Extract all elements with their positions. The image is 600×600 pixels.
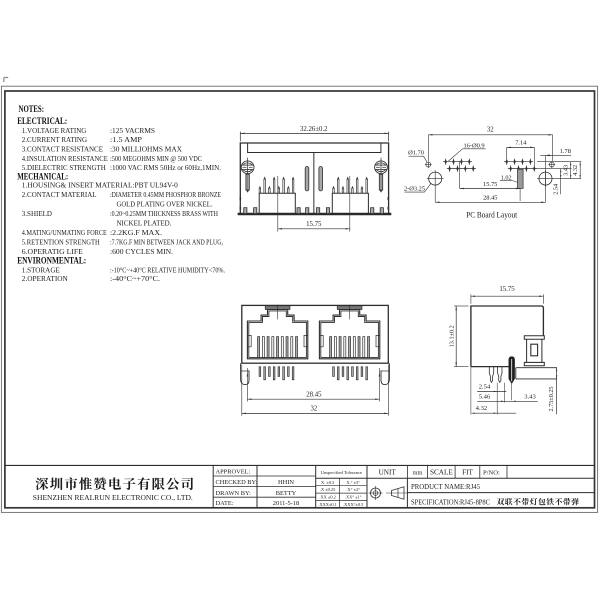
svg-text:DRAWN BY:: DRAWN BY:	[216, 490, 252, 497]
svg-text:NICKEL PLATED.: NICKEL PLATED.	[117, 219, 172, 227]
svg-text:1.STORAGE: 1.STORAGE	[22, 266, 60, 274]
svg-text::30 MILLIOHMS MAX: :30 MILLIOHMS MAX	[110, 146, 182, 154]
svg-text::-40°C~+70°C.: :-40°C~+70°C.	[110, 275, 160, 283]
svg-text:16-Ø0.9: 16-Ø0.9	[463, 142, 484, 149]
svg-text:mm: mm	[413, 469, 423, 476]
svg-text:3.SHIELD: 3.SHIELD	[22, 210, 52, 218]
svg-text:1.02: 1.02	[501, 174, 512, 181]
svg-text:Unspecified Tolerance: Unspecified Tolerance	[321, 470, 362, 475]
svg-text:ELECTRICAL:: ELECTRICAL:	[17, 116, 67, 126]
svg-text::1.5 AMP: :1.5 AMP	[110, 136, 142, 144]
svg-text:5.46: 5.46	[479, 393, 491, 400]
svg-text:.X° ±2°: .X° ±2°	[346, 487, 360, 492]
svg-text::500 MEGOHMS MIN @ 500 VDC: :500 MEGOHMS MIN @ 500 VDC	[110, 155, 202, 163]
svg-text:4.MATING/UNMATING FORCE: 4.MATING/UNMATING FORCE	[22, 229, 107, 237]
svg-text:Ø1.70: Ø1.70	[408, 150, 424, 157]
svg-text::125 VACRMS: :125 VACRMS	[110, 127, 155, 135]
svg-text:APPROVEL:: APPROVEL:	[216, 469, 251, 476]
svg-text:.XX° ±1°: .XX° ±1°	[345, 495, 362, 500]
svg-text:SCALE: SCALE	[430, 468, 453, 476]
svg-text:2-Ø3.25: 2-Ø3.25	[404, 186, 425, 193]
svg-text:.X ±0.25: .X ±0.25	[320, 487, 336, 492]
svg-text:28.45: 28.45	[306, 391, 322, 398]
svg-text:5.RETENTION STRENGTH: 5.RETENTION STRENGTH	[22, 238, 100, 246]
svg-text:2.CURRENT RATING: 2.CURRENT RATING	[22, 136, 87, 144]
svg-text:X.° ±5°: X.° ±5°	[346, 480, 360, 485]
svg-text:CHECKED BY:: CHECKED BY:	[216, 479, 258, 486]
svg-text:PC Board Layout: PC Board Layout	[466, 210, 518, 219]
svg-text:4.32: 4.32	[476, 405, 488, 412]
svg-text::DIAMETER 0.45MM PHOSPHOR BRON: :DIAMETER 0.45MM PHOSPHOR BRONZE	[110, 191, 221, 199]
svg-text:FIT: FIT	[462, 468, 473, 476]
svg-text::2.2KG.F MAX.: :2.2KG.F MAX.	[110, 229, 162, 237]
svg-text:32: 32	[487, 126, 494, 133]
svg-text:3.43: 3.43	[562, 165, 569, 176]
svg-text::600 CYCLES MIN.: :600 CYCLES MIN.	[110, 248, 173, 256]
svg-text:HHIN: HHIN	[278, 479, 294, 486]
svg-text:28.45: 28.45	[483, 195, 497, 202]
svg-text:2.75±0.25: 2.75±0.25	[548, 386, 555, 411]
svg-text:X. ±0.3: X. ±0.3	[321, 480, 335, 485]
svg-text:32: 32	[311, 406, 318, 413]
svg-text:.XXX°±0.5: .XXX°±0.5	[343, 502, 364, 507]
svg-text:PRODUCT NAME:RJ45: PRODUCT NAME:RJ45	[411, 483, 480, 491]
svg-text:SPECIFICATION:RJ45-8P8C: SPECIFICATION:RJ45-8P8C	[411, 498, 490, 506]
svg-text:.XX ±0.2: .XX ±0.2	[319, 495, 335, 500]
svg-text:32.26±0.2: 32.26±0.2	[300, 126, 328, 133]
svg-text:1.HOUSING& INSERT MATERIAL:PBT: 1.HOUSING& INSERT MATERIAL:PBT UL94V-0	[22, 181, 179, 189]
svg-text:7.14: 7.14	[515, 140, 527, 147]
svg-text:MECHANICAL:: MECHANICAL:	[17, 172, 68, 182]
svg-text:2.54: 2.54	[552, 184, 559, 195]
svg-text:SHENZHEN REALRUN ELECTRONIC CO: SHENZHEN REALRUN ELECTRONIC CO., LTD.	[33, 494, 193, 502]
svg-text:4.32: 4.32	[572, 165, 579, 176]
svg-text:P/NO:: P/NO:	[483, 469, 500, 476]
svg-text:15.75: 15.75	[483, 181, 497, 188]
svg-text::0.20~0.25MM THICKNESS BRASS W: :0.20~0.25MM THICKNESS BRASS WITH	[110, 210, 218, 218]
svg-text:DATE:: DATE:	[216, 500, 234, 507]
svg-text:UNIT: UNIT	[379, 468, 397, 476]
svg-text:15.75: 15.75	[499, 286, 515, 293]
svg-text:3.CONTACT RESISTANCE: 3.CONTACT RESISTANCE	[22, 146, 103, 154]
svg-text:GOLD PLATING OVER NICKEL.: GOLD PLATING OVER NICKEL.	[117, 200, 213, 208]
svg-text:2.CONTACT MATERIAL: 2.CONTACT MATERIAL	[22, 191, 97, 199]
svg-text:NOTES:: NOTES:	[19, 104, 45, 114]
svg-text::1000 VAC RMS 50Hz or 60Hz,1MI: :1000 VAC RMS 50Hz or 60Hz,1MIN.	[110, 164, 221, 172]
svg-text:2.OPERATION: 2.OPERATION	[22, 275, 68, 283]
svg-text:3.43: 3.43	[524, 393, 536, 400]
svg-text:1.VOLTAGE RATING: 1.VOLTAGE RATING	[22, 127, 87, 135]
svg-text::-10°C~+40°C RELATIVE HUMIDITY: :-10°C~+40°C RELATIVE HUMIDITY<70%.	[110, 266, 225, 274]
svg-text:15.75: 15.75	[306, 221, 322, 228]
svg-text:ENVIRONMENTAL:: ENVIRONMENTAL:	[17, 255, 86, 265]
svg-text:4.INSULATION RESISTANCE: 4.INSULATION RESISTANCE	[22, 155, 108, 163]
svg-text:13.1±0.2: 13.1±0.2	[448, 325, 455, 347]
svg-text:2011-5-18: 2011-5-18	[273, 500, 299, 507]
svg-text:BETTY: BETTY	[276, 490, 297, 497]
svg-text:2.54: 2.54	[479, 384, 491, 391]
svg-text:1.78: 1.78	[560, 148, 571, 155]
svg-text::7.7KG.F MIN BETWEEN JACK AND: :7.7KG.F MIN BETWEEN JACK AND PLUG,	[110, 238, 223, 246]
svg-text:.XXX±0.1: .XXX±0.1	[318, 502, 337, 507]
